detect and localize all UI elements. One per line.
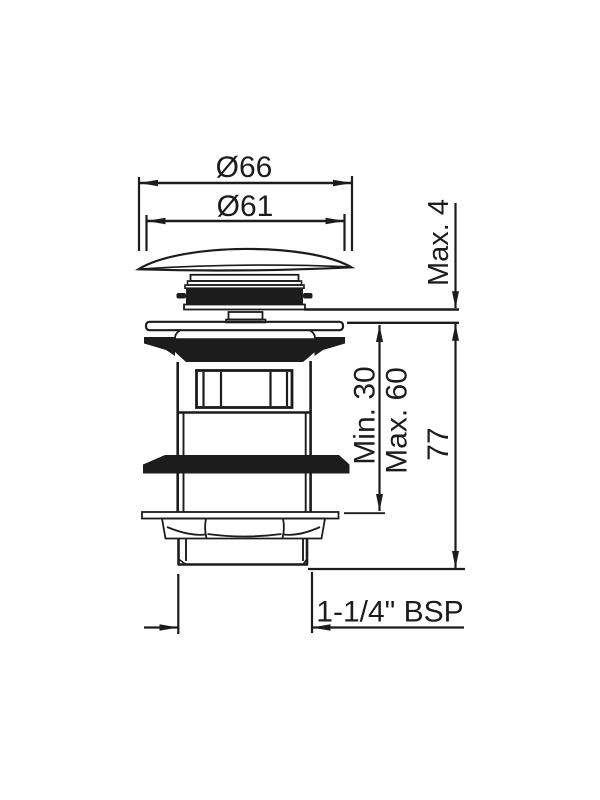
svg-text:Ø66: Ø66 xyxy=(216,151,273,184)
svg-text:1-1/4" BSP: 1-1/4" BSP xyxy=(316,596,463,629)
svg-text:Min. 30: Min. 30 xyxy=(349,366,382,464)
svg-text:77: 77 xyxy=(422,427,455,460)
svg-text:Max. 60: Max. 60 xyxy=(381,367,414,474)
svg-text:Max. 4: Max. 4 xyxy=(423,199,455,286)
svg-text:Ø61: Ø61 xyxy=(217,190,274,223)
